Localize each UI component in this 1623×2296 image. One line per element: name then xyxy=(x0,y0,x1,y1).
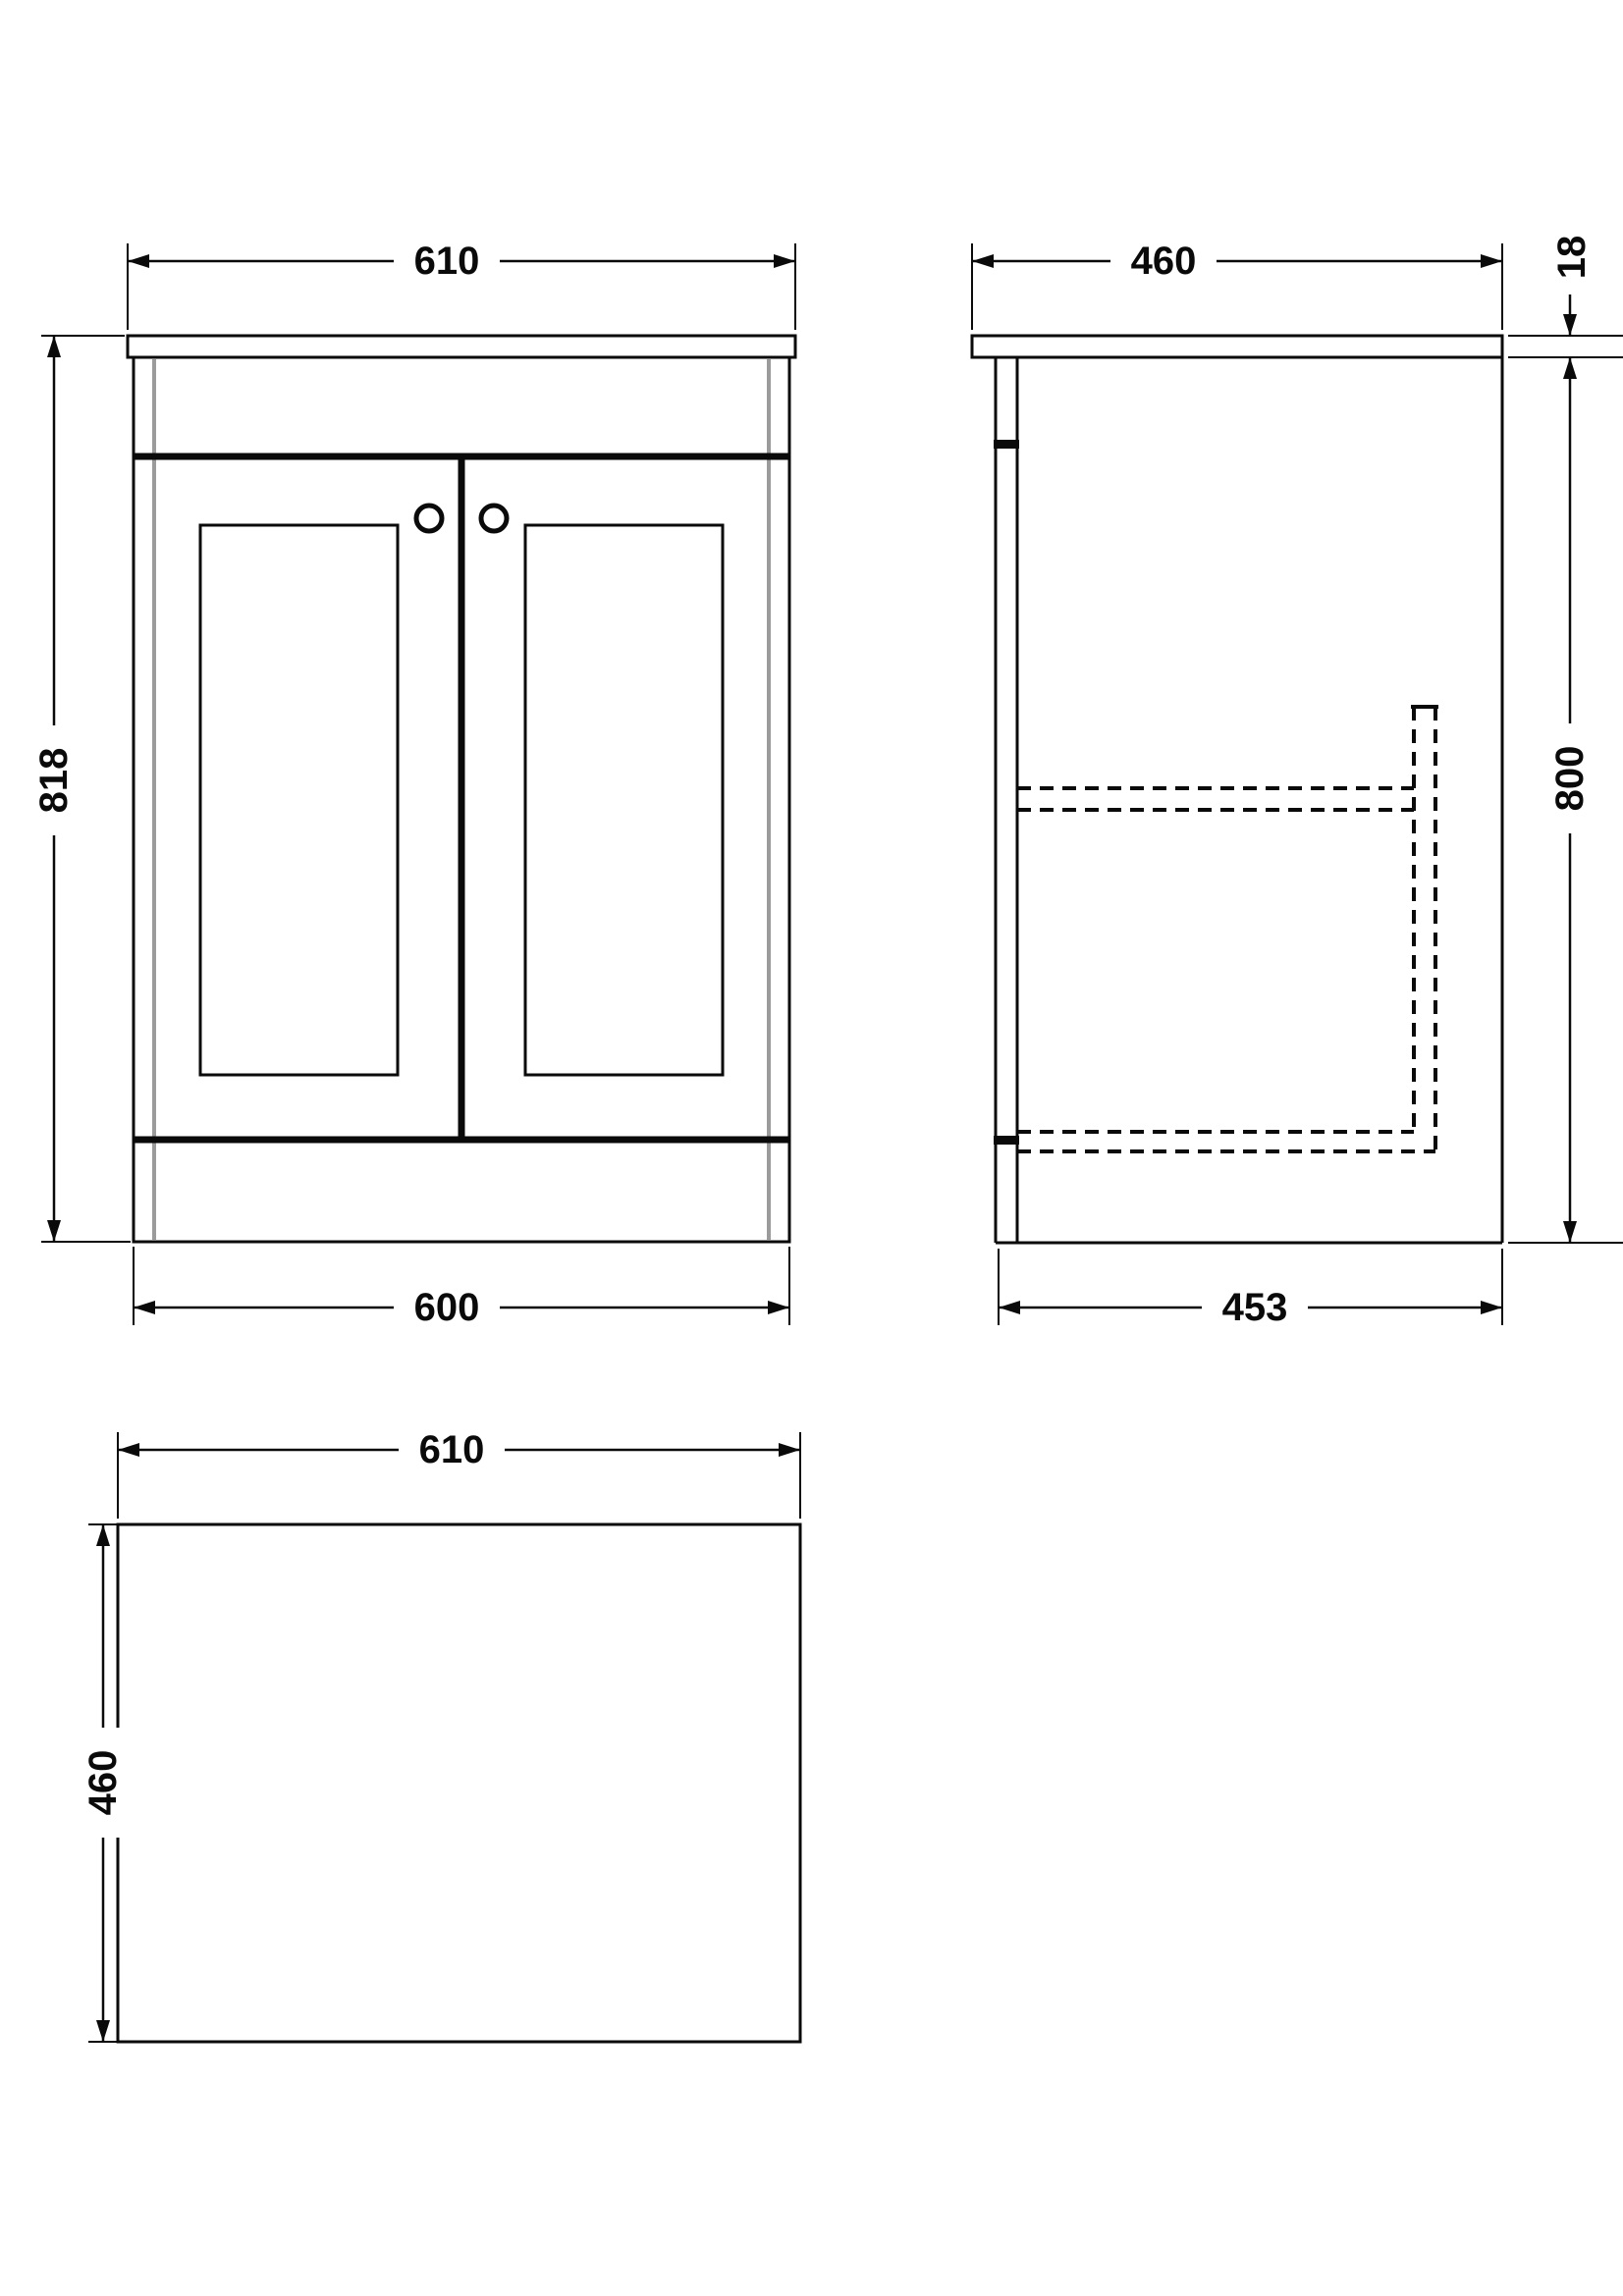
left-door-panel xyxy=(200,525,398,1075)
hidden-shelf-lines xyxy=(1017,788,1414,810)
dim-label-side-depth-top: 460 xyxy=(1131,240,1197,283)
dim-label-side-height: 800 xyxy=(1548,746,1592,812)
dim-front-height: 818 xyxy=(32,336,131,1242)
dim-label-plan-width: 610 xyxy=(419,1428,485,1471)
plan-outline xyxy=(118,1524,800,2042)
dim-side-depth-top: 460 xyxy=(972,240,1502,330)
technical-drawing: 610 818 600 xyxy=(0,0,1623,2296)
dim-plan-width: 610 xyxy=(118,1428,800,1519)
dim-label-side-depth-bottom: 453 xyxy=(1222,1286,1288,1329)
left-door-knob xyxy=(416,506,442,531)
dim-label-plan-depth: 460 xyxy=(81,1750,125,1816)
dim-label-front-width-bottom: 600 xyxy=(414,1286,480,1329)
dim-front-width-top: 610 xyxy=(128,240,795,330)
hinge-mark-top xyxy=(994,440,1019,449)
dim-side-counter-thickness: 18 xyxy=(1508,236,1623,379)
right-door-panel xyxy=(525,525,723,1075)
dim-label-side-counter-thickness: 18 xyxy=(1550,236,1594,280)
plan-view: 610 460 xyxy=(81,1428,800,2042)
dim-label-front-width-top: 610 xyxy=(414,240,480,283)
hinge-mark-bottom xyxy=(994,1136,1019,1145)
drawing-sheet: 610 818 600 xyxy=(0,0,1623,2296)
front-elevation-view: 610 818 600 xyxy=(32,240,795,1329)
dim-front-width-bottom: 600 xyxy=(134,1247,789,1329)
dim-side-height: 800 xyxy=(1508,357,1623,1243)
hidden-duct-lines xyxy=(1017,707,1438,1151)
dim-side-depth-bottom: 453 xyxy=(999,1249,1502,1329)
dim-label-front-height: 818 xyxy=(32,748,76,814)
side-countertop xyxy=(972,336,1502,357)
right-door-knob xyxy=(481,506,507,531)
side-elevation-view: 460 18 800 xyxy=(972,236,1623,1329)
front-countertop xyxy=(128,336,795,357)
